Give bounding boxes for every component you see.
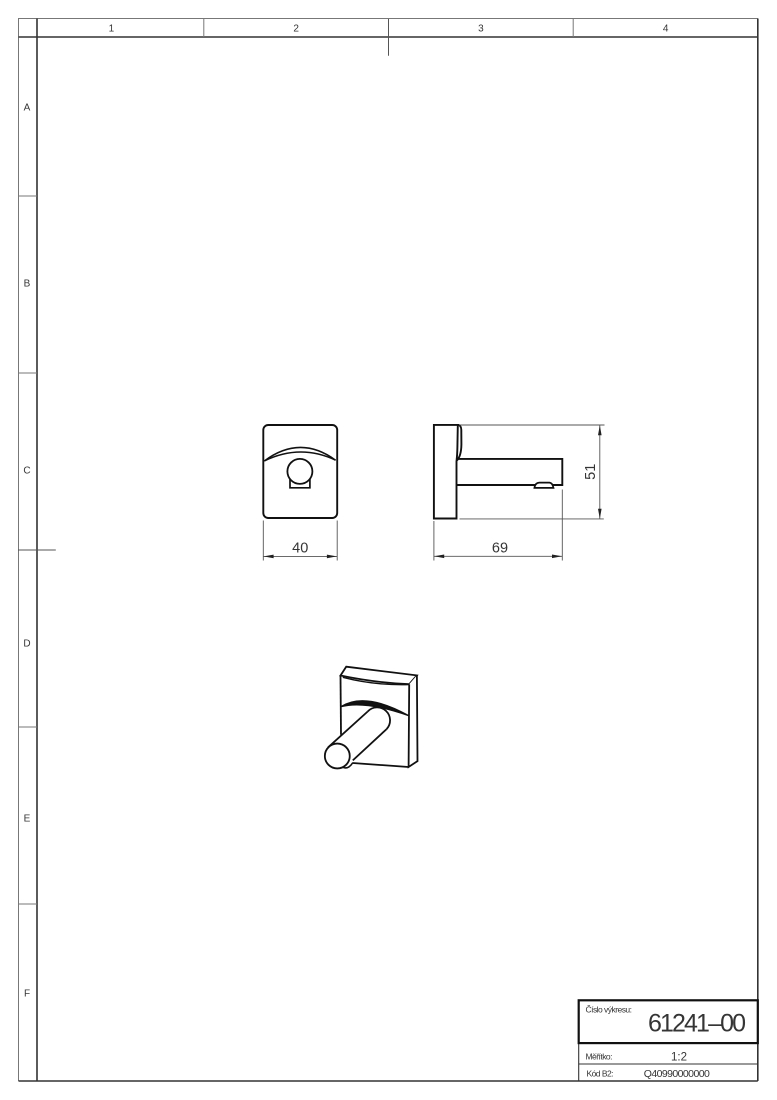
svg-text:B: B	[24, 279, 31, 290]
svg-text:Q40990000000: Q40990000000	[644, 1068, 710, 1080]
svg-text:F: F	[24, 989, 30, 1000]
svg-text:E: E	[24, 814, 31, 825]
svg-text:Číslo výkresu:: Číslo výkresu:	[586, 1004, 633, 1014]
svg-text:1:2: 1:2	[671, 1051, 687, 1063]
svg-text:61241–00: 61241–00	[648, 1010, 746, 1038]
svg-text:2: 2	[293, 24, 299, 35]
svg-text:51: 51	[583, 464, 599, 480]
svg-text:Kód B2:: Kód B2:	[587, 1069, 614, 1079]
svg-text:69: 69	[492, 540, 508, 556]
svg-text:Měřítko:: Měřítko:	[586, 1052, 613, 1062]
svg-text:1: 1	[109, 24, 115, 35]
svg-text:40: 40	[292, 540, 308, 556]
svg-text:C: C	[23, 466, 30, 477]
svg-text:A: A	[24, 102, 31, 113]
svg-text:3: 3	[478, 24, 484, 35]
svg-text:4: 4	[663, 24, 669, 35]
svg-text:D: D	[23, 639, 30, 650]
